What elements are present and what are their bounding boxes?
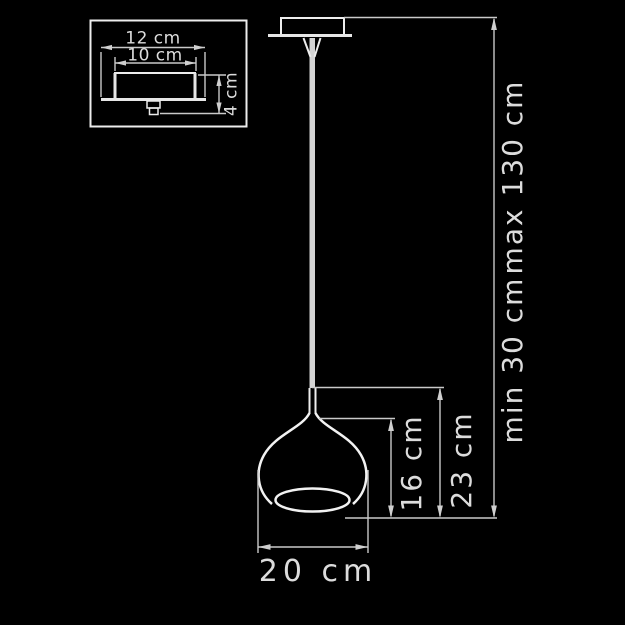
dimension-4cm <box>160 75 226 114</box>
arrow-bottom-16cm <box>388 506 394 519</box>
funnel-left-edge <box>304 38 311 57</box>
cord-grip-lower <box>150 108 159 115</box>
suspension-cord <box>310 38 316 388</box>
arrow-top-height <box>491 18 497 31</box>
ceiling-canopy <box>268 18 352 36</box>
arrow-left-12cm <box>101 45 112 50</box>
funnel-right-edge <box>315 38 321 57</box>
shade-profile-left <box>259 413 310 504</box>
arrow-top-16cm <box>388 419 394 432</box>
canopy-box <box>281 18 344 34</box>
arrow-left-10cm <box>115 60 126 65</box>
arrow-bottom-23cm <box>437 506 443 519</box>
cord-grip-upper <box>147 101 160 108</box>
shade-diameter-label: 20 cm <box>259 557 377 587</box>
suspension-max-label: max 130 cm <box>499 80 527 275</box>
shade-profile-right <box>316 413 367 504</box>
shade-overall-height-label: 23 cm <box>448 411 476 508</box>
arrow-bottom-height <box>491 506 497 519</box>
arrow-right-20cm <box>356 544 369 550</box>
dimension-drawing-canvas: 12 cm 10 cm 4 cm 20 cm 16 cm 23 cm min 3… <box>0 0 625 625</box>
line-art <box>0 0 625 625</box>
suspension-min-label: min 30 cm <box>499 277 527 444</box>
arrow-left-20cm <box>258 544 271 550</box>
canopy-height-label: 4 cm <box>224 72 241 116</box>
canopy-inner-width-label: 10 cm <box>127 48 182 65</box>
extension-lines-4cm <box>160 75 226 114</box>
arrow-right-10cm <box>185 60 196 65</box>
glass-height-label: 16 cm <box>398 414 426 511</box>
arrow-top-23cm <box>437 388 443 401</box>
shade-bottom-rim <box>276 489 350 512</box>
canopy-side-view <box>101 73 206 115</box>
dimension-16cm <box>319 419 395 519</box>
glass-shade <box>259 388 367 512</box>
arrow-right-12cm <box>194 45 205 50</box>
